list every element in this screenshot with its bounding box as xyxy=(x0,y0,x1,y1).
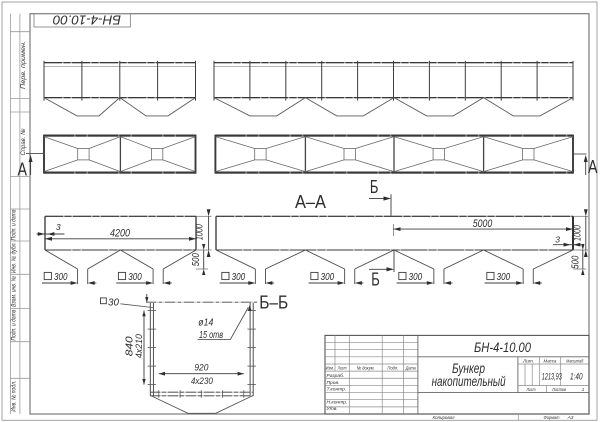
svg-text:Масса: Масса xyxy=(544,358,557,364)
svg-text:Масштаб: Масштаб xyxy=(566,358,583,364)
svg-text:Листов: Листов xyxy=(551,387,566,393)
svg-text:Лист: Лист xyxy=(526,387,536,393)
svg-text:Б–Б: Б–Б xyxy=(259,293,288,313)
svg-text:Т.контр.: Т.контр. xyxy=(327,386,347,392)
svg-text:1000: 1000 xyxy=(573,225,584,241)
svg-text:Лит.: Лит. xyxy=(522,358,534,364)
svg-text:500: 500 xyxy=(570,255,581,268)
svg-text:Перв. примен.: Перв. примен. xyxy=(20,41,27,89)
svg-text:Подп. и дата: Подп. и дата xyxy=(12,209,18,241)
svg-text:Б: Б xyxy=(370,177,379,197)
svg-text:А–А: А–А xyxy=(295,192,326,212)
svg-text:5000: 5000 xyxy=(473,218,493,230)
svg-text:Справ. №: Справ. № xyxy=(20,128,27,155)
svg-text:4200: 4200 xyxy=(110,227,131,239)
svg-text:Разраб.: Разраб. xyxy=(327,373,345,379)
svg-text:3: 3 xyxy=(56,222,61,232)
svg-text:1: 1 xyxy=(582,387,585,393)
svg-text:Инв. № дубл.: Инв. № дубл. xyxy=(11,242,18,273)
svg-text:300: 300 xyxy=(497,272,511,283)
svg-text:Б: Б xyxy=(371,269,380,289)
svg-text:Копировал: Копировал xyxy=(433,415,455,421)
svg-text:Лист: Лист xyxy=(337,366,347,372)
svg-text:А3: А3 xyxy=(567,415,574,421)
svg-text:920: 920 xyxy=(194,362,208,372)
svg-text:1000: 1000 xyxy=(195,224,206,240)
svg-text:Изм.: Изм. xyxy=(326,366,335,372)
svg-text:4х210: 4х210 xyxy=(134,333,145,358)
svg-text:ø14: ø14 xyxy=(198,317,213,328)
svg-text:300: 300 xyxy=(54,272,68,283)
svg-text:Формат: Формат xyxy=(544,415,560,421)
svg-text:1:40: 1:40 xyxy=(570,371,583,381)
svg-text:№ докум.: № докум. xyxy=(357,366,375,372)
svg-text:Пров.: Пров. xyxy=(327,380,340,386)
svg-text:Взам. инв. №: Взам. инв. № xyxy=(11,275,18,306)
svg-text:БН-4-10.00: БН-4-10.00 xyxy=(53,12,121,26)
svg-text:300: 300 xyxy=(321,272,335,283)
svg-text:1213,93: 1213,93 xyxy=(542,371,562,381)
svg-text:А: А xyxy=(18,159,28,180)
svg-text:15 отв: 15 отв xyxy=(199,330,223,341)
svg-text:Дата: Дата xyxy=(405,366,416,372)
svg-text:3: 3 xyxy=(555,235,560,245)
svg-text:300: 300 xyxy=(409,272,423,283)
svg-text:А: А xyxy=(588,156,598,177)
svg-text:4х230: 4х230 xyxy=(191,376,214,387)
svg-text:300: 300 xyxy=(128,272,142,283)
svg-text:500: 500 xyxy=(191,253,202,266)
svg-text:БН-4-10.00: БН-4-10.00 xyxy=(474,339,531,355)
svg-text:Подп.: Подп. xyxy=(387,366,398,372)
svg-text:Инв. № подл.: Инв. № подл. xyxy=(11,381,18,412)
svg-text:300: 300 xyxy=(232,272,246,283)
svg-text:Утв.: Утв. xyxy=(327,406,338,412)
svg-text:накопительный: накопительный xyxy=(432,374,506,389)
svg-text:Н.контр.: Н.контр. xyxy=(327,400,348,406)
svg-text:30: 30 xyxy=(108,297,119,308)
svg-text:Подп. и дата: Подп. и дата xyxy=(12,309,18,341)
